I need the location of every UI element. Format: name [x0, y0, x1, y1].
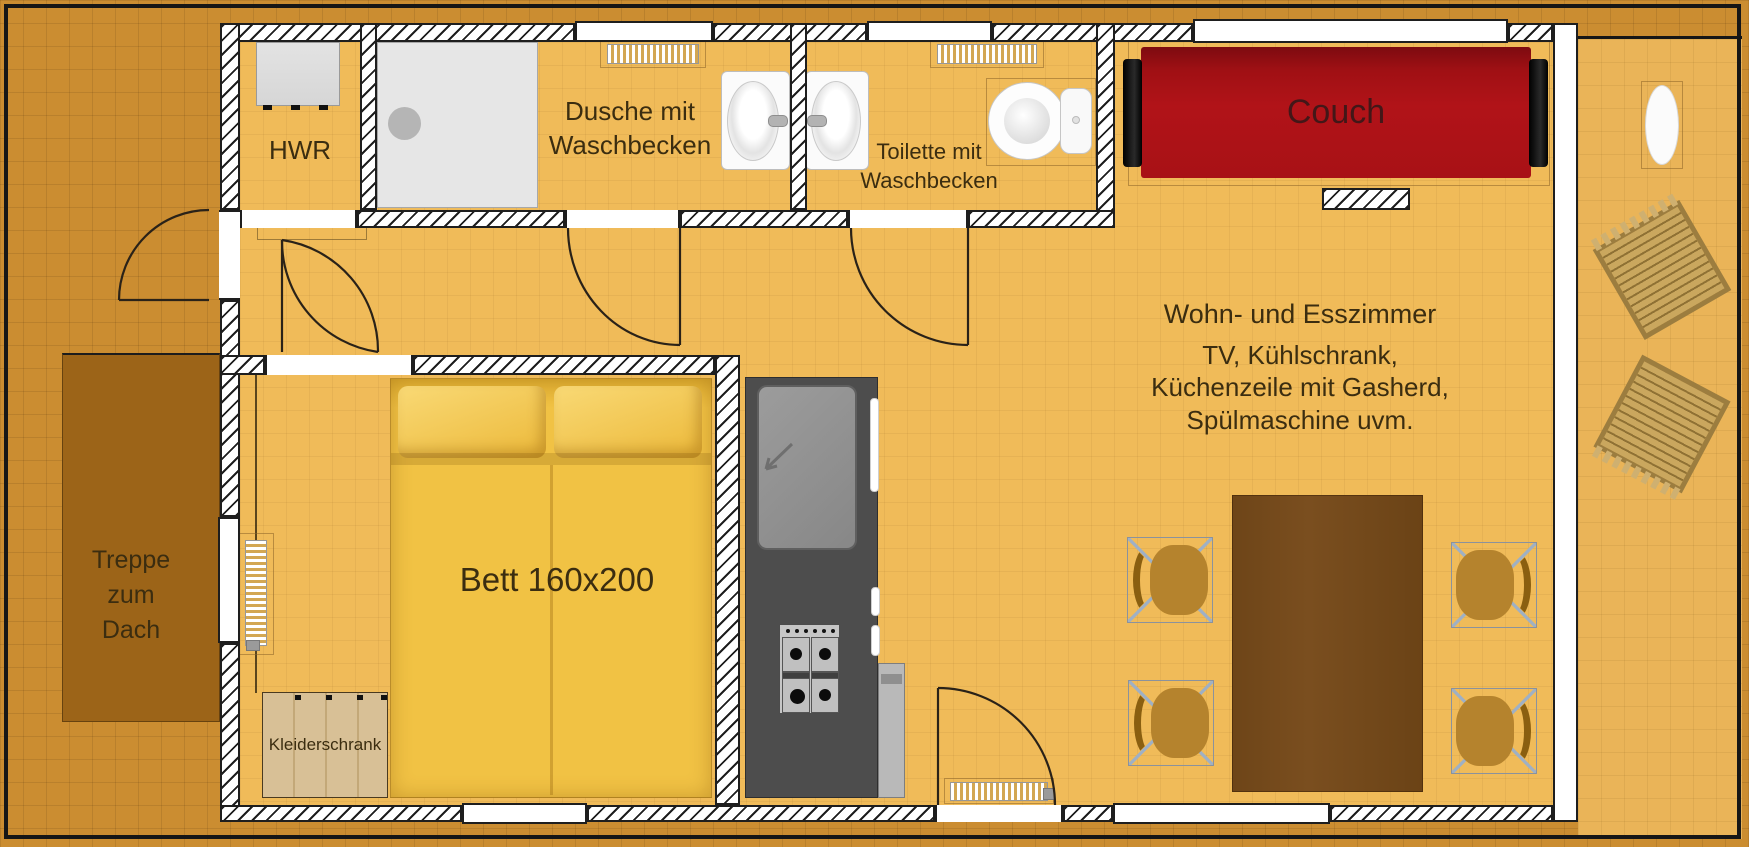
- chair-seat: [1456, 696, 1514, 766]
- burner-cell: [811, 678, 839, 713]
- couch-armrest: [1123, 59, 1142, 167]
- toilet-flush-button-icon: [1072, 116, 1080, 124]
- bed-pillow: [554, 386, 702, 458]
- stove-knob-icon: [804, 629, 808, 633]
- wall-segment: [220, 643, 240, 822]
- wardrobe-hinge-icon: [357, 695, 363, 700]
- cabinet-handle-icon: [870, 398, 879, 492]
- room-label-shower-line2: Waschbecken: [520, 131, 740, 160]
- window: [867, 21, 992, 42]
- washing-machine-connector-icon: [319, 105, 328, 110]
- chair-seat: [1151, 688, 1209, 758]
- chair-seat: [1456, 550, 1514, 620]
- window: [218, 517, 240, 643]
- dining-chair: [1127, 537, 1213, 623]
- radiator-valve-icon: [246, 640, 260, 651]
- stove-knob-icon: [795, 629, 799, 633]
- radiator-valve-icon: [1043, 788, 1055, 800]
- washing-machine-connector-icon: [291, 105, 300, 110]
- wall-segment: [360, 23, 377, 210]
- window-wall-terrace: [1553, 23, 1578, 822]
- room-label-living-line1: TV, Kühlschrank,: [1100, 341, 1500, 370]
- cabinet-handle-icon: [871, 587, 880, 616]
- wall-segment: [968, 210, 1115, 228]
- stairs-label-line1: Treppe: [66, 543, 196, 578]
- wall-segment: [715, 355, 740, 805]
- burner-icon: [819, 689, 831, 701]
- door-opening-entrance: [935, 805, 1063, 822]
- door-opening: [848, 210, 968, 228]
- burner-cell: [782, 637, 810, 672]
- burner-icon: [819, 648, 831, 660]
- wardrobe-hinge-icon: [381, 695, 387, 700]
- wardrobe-label: Kleiderschrank: [269, 736, 381, 755]
- burner-icon: [790, 689, 805, 704]
- door-frame: [257, 227, 367, 240]
- window: [462, 803, 587, 824]
- dining-chair: [1451, 542, 1537, 628]
- stairs-label-line2: zum: [66, 578, 196, 613]
- dishwasher-handle-icon: [881, 674, 902, 684]
- burner-icon: [790, 648, 802, 660]
- bed-label: Bett 160x200: [397, 562, 717, 598]
- dining-chair: [1128, 680, 1214, 766]
- room-label-toilet-line2: Waschbecken: [829, 169, 1029, 193]
- room-label-shower-line1: Dusche mit: [530, 97, 730, 126]
- radiator: [950, 782, 1048, 801]
- cabinet-handle-icon: [871, 625, 880, 656]
- wall-segment: [220, 805, 462, 822]
- couch: Couch: [1141, 47, 1531, 178]
- stove-knob-icon: [831, 629, 835, 633]
- stairs-to-roof: [62, 353, 220, 722]
- wall-segment: [1063, 805, 1113, 822]
- wall-segment: [220, 23, 575, 42]
- wardrobe: Kleiderschrank: [262, 692, 388, 798]
- shower-drain-icon: [388, 107, 421, 140]
- faucet-icon: [768, 115, 788, 127]
- window: [1113, 803, 1330, 824]
- wall-segment: [1508, 23, 1553, 42]
- wall-segment: [1330, 805, 1553, 822]
- terrace-table: [1645, 85, 1679, 165]
- wall-segment: [680, 210, 848, 228]
- stairs-label-line3: Dach: [66, 613, 196, 648]
- burner-cell: [782, 678, 810, 713]
- stove-knob-icon: [822, 629, 826, 633]
- room-label-living-line2: Küchenzeile mit Gasherd,: [1100, 373, 1500, 402]
- wardrobe-hinge-icon: [326, 695, 332, 700]
- wall-segment: [357, 210, 565, 228]
- dining-chair: [1451, 688, 1537, 774]
- chair-seat: [1150, 545, 1208, 615]
- wall-segment: [587, 805, 935, 822]
- room-label-toilet-line1: Toilette mit: [829, 140, 1029, 164]
- duvet-crease: [550, 465, 553, 795]
- washing-machine-connector-icon: [263, 105, 272, 110]
- duvet-fold: [391, 453, 711, 465]
- window: [575, 21, 713, 42]
- wall-segment: [220, 300, 240, 517]
- stairs-label: Treppe zum Dach: [66, 543, 196, 648]
- wall-segment: [220, 355, 265, 375]
- wall-segment: [220, 23, 240, 210]
- door-opening: [565, 210, 680, 228]
- door-opening: [240, 210, 357, 228]
- room-label-living-line3: Spülmaschine uvm.: [1100, 406, 1500, 435]
- wall-segment: [992, 23, 1193, 42]
- door-opening: [219, 210, 240, 300]
- room-label-living-title: Wohn- und Esszimmer: [1100, 300, 1500, 330]
- radiator-vertical: [245, 540, 267, 646]
- door-opening: [265, 355, 413, 375]
- stove-knob-icon: [786, 629, 790, 633]
- wall-segment: [1322, 188, 1410, 210]
- kitchen-sink-unit: [757, 385, 857, 550]
- bed-pillow: [398, 386, 546, 458]
- gas-stove: [779, 624, 840, 714]
- burner-cell: [811, 637, 839, 672]
- wall-segment: [413, 355, 715, 375]
- stove-knob-icon: [813, 629, 817, 633]
- faucet-icon: [807, 115, 827, 127]
- couch-label: Couch: [1287, 94, 1385, 131]
- room-label-hwr: HWR: [250, 136, 350, 165]
- door-arc: [119, 210, 209, 300]
- floor-plan-canvas: Couch Kleiderschrank: [0, 0, 1749, 847]
- wall-segment: [1096, 23, 1115, 228]
- radiator: [607, 44, 699, 64]
- radiator: [937, 44, 1037, 64]
- window: [1193, 19, 1508, 43]
- dining-table: [1232, 495, 1423, 792]
- wall-segment: [790, 23, 807, 210]
- toilet-bowl-inner: [1004, 98, 1050, 144]
- washing-machine: [256, 42, 340, 106]
- wardrobe-hinge-icon: [295, 695, 301, 700]
- couch-armrest: [1529, 59, 1548, 167]
